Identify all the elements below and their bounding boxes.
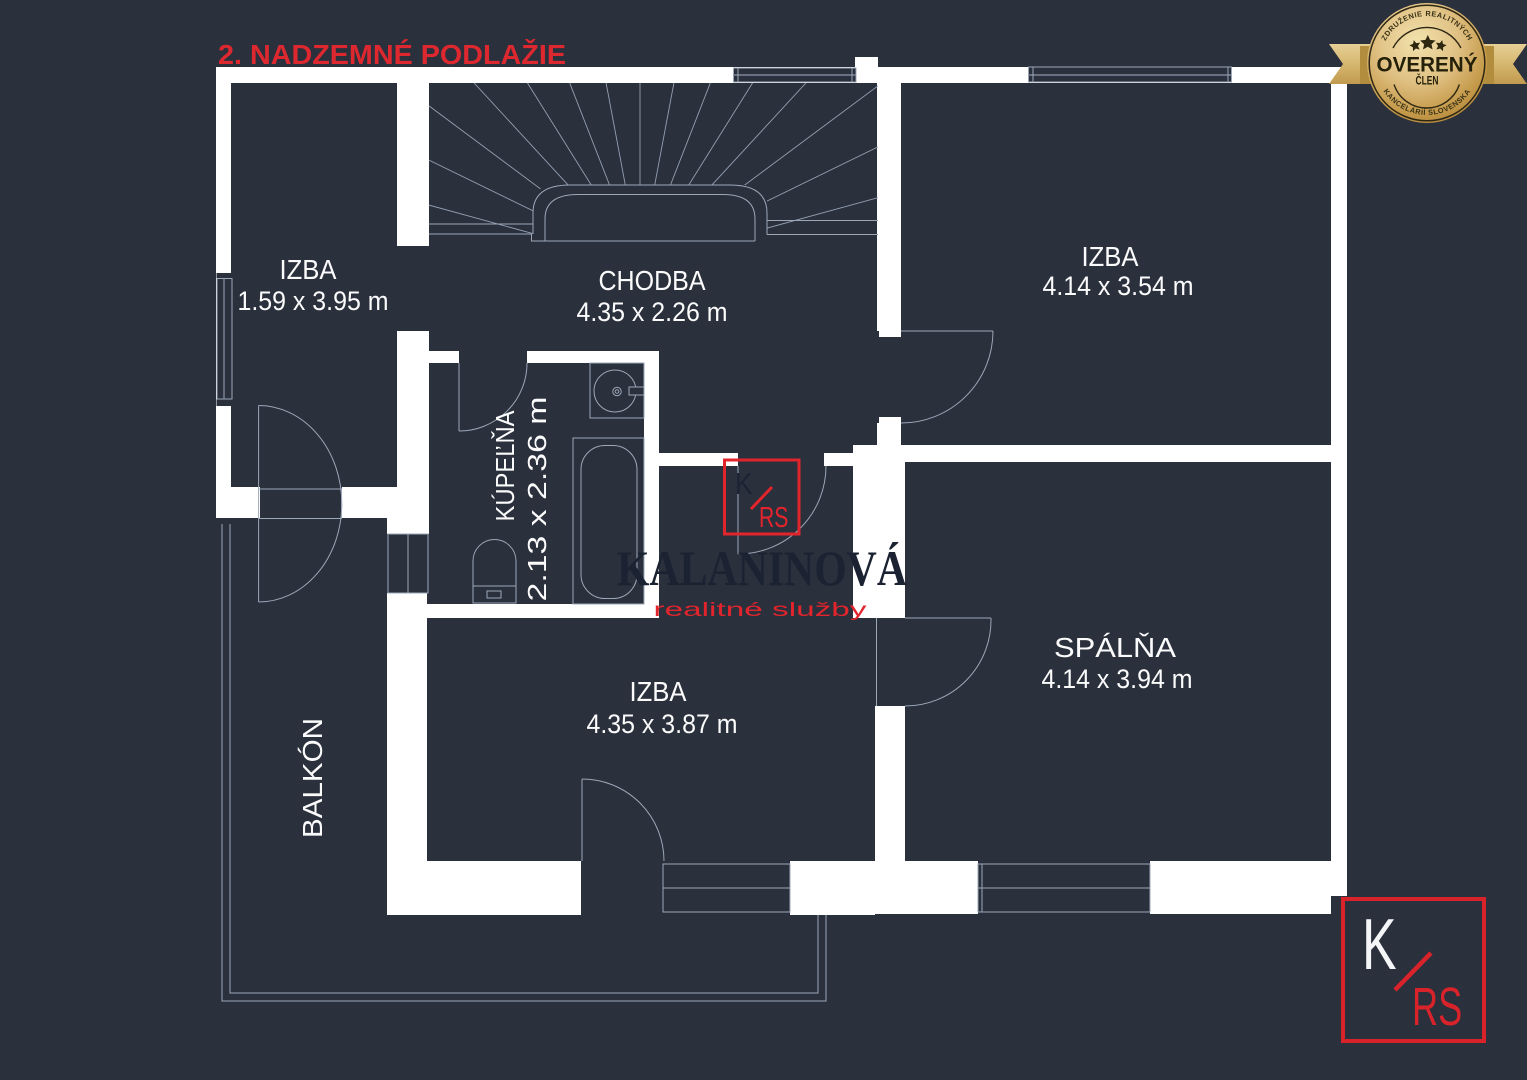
svg-text:K: K xyxy=(1362,905,1397,985)
svg-text:RS: RS xyxy=(759,502,788,534)
svg-text:4.35 x 3.87 m: 4.35 x 3.87 m xyxy=(587,709,738,739)
svg-text:2.13 x 2.36 m: 2.13 x 2.36 m xyxy=(524,397,552,602)
svg-text:SPÁLŇA: SPÁLŇA xyxy=(1054,632,1176,663)
svg-text:K: K xyxy=(735,467,753,501)
svg-text:CHODBA: CHODBA xyxy=(599,265,706,296)
svg-text:2. NADZEMNÉ PODLAŽIE: 2. NADZEMNÉ PODLAŽIE xyxy=(218,39,566,70)
svg-text:IZBA: IZBA xyxy=(630,676,687,707)
svg-text:1.59 x 3.95 m: 1.59 x 3.95 m xyxy=(238,286,389,316)
svg-text:BALKÓN: BALKÓN xyxy=(297,718,328,838)
svg-text:IZBA: IZBA xyxy=(280,254,337,285)
svg-text:4.14 x 3.94 m: 4.14 x 3.94 m xyxy=(1042,664,1193,694)
svg-text:IZBA: IZBA xyxy=(1082,241,1139,272)
svg-text:ČLEN: ČLEN xyxy=(1416,73,1439,88)
svg-text:KALANINOVÁ: KALANINOVÁ xyxy=(617,540,907,596)
svg-text:realitné služby: realitné služby xyxy=(654,599,867,621)
svg-text:RS: RS xyxy=(1412,976,1462,1037)
svg-text:4.35 x 2.26 m: 4.35 x 2.26 m xyxy=(577,297,728,327)
svg-text:KÚPEĽŇA: KÚPEĽŇA xyxy=(491,411,520,522)
svg-text:4.14 x 3.54 m: 4.14 x 3.54 m xyxy=(1043,271,1194,301)
